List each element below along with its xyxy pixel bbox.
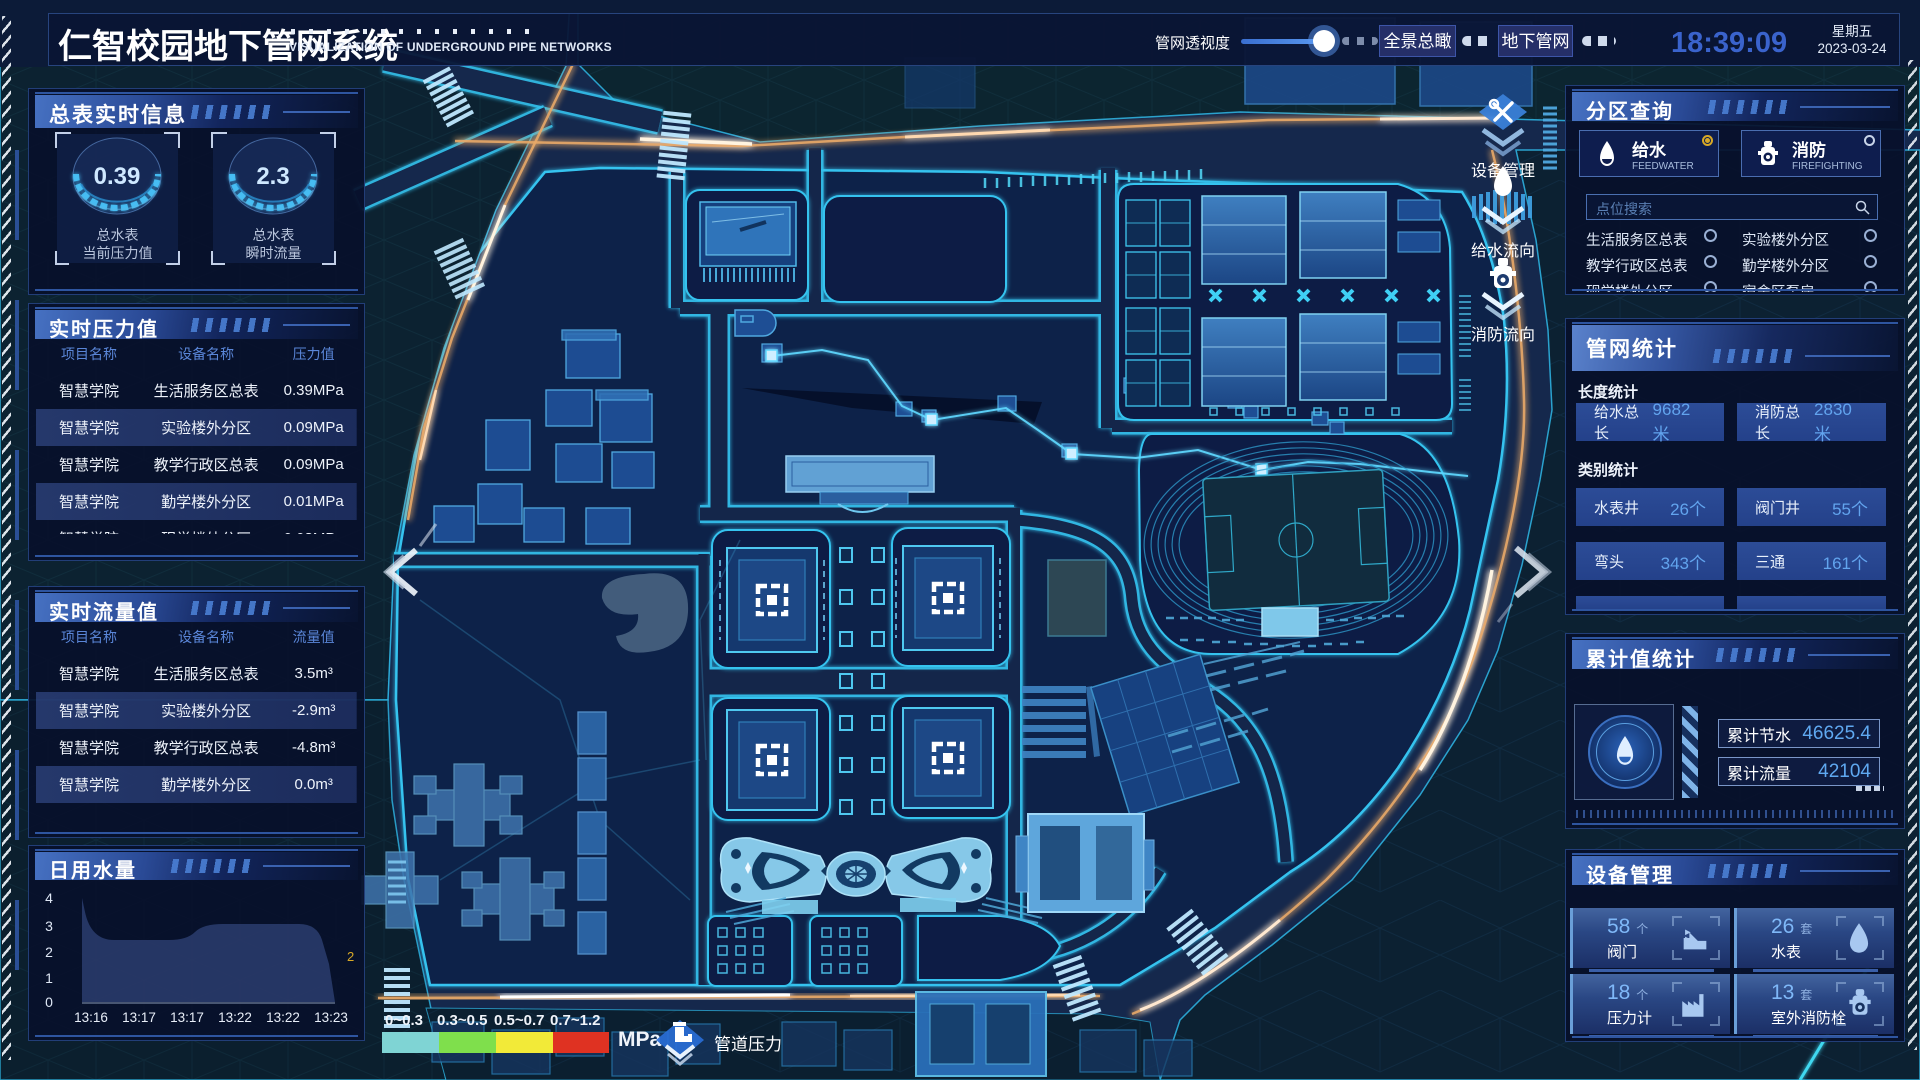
svg-text:13:23: 13:23 (314, 1010, 348, 1025)
svg-text:1: 1 (45, 970, 53, 986)
svg-text:3: 3 (45, 918, 53, 934)
svg-text:0.39: 0.39 (94, 163, 141, 190)
svg-text:2: 2 (347, 949, 354, 964)
svg-text:2.3: 2.3 (256, 163, 289, 190)
svg-text:消防流向: 消防流向 (1471, 326, 1535, 344)
svg-text:13:17: 13:17 (122, 1010, 156, 1025)
svg-text:13:16: 13:16 (74, 1010, 108, 1025)
svg-text:13:22: 13:22 (218, 1010, 252, 1025)
svg-text:给水流向: 给水流向 (1471, 242, 1535, 260)
svg-text:4: 4 (45, 890, 53, 906)
svg-text:0: 0 (45, 994, 53, 1010)
svg-text:2: 2 (45, 944, 53, 960)
svg-text:13:17: 13:17 (170, 1010, 204, 1025)
svg-text:13:22: 13:22 (266, 1010, 300, 1025)
